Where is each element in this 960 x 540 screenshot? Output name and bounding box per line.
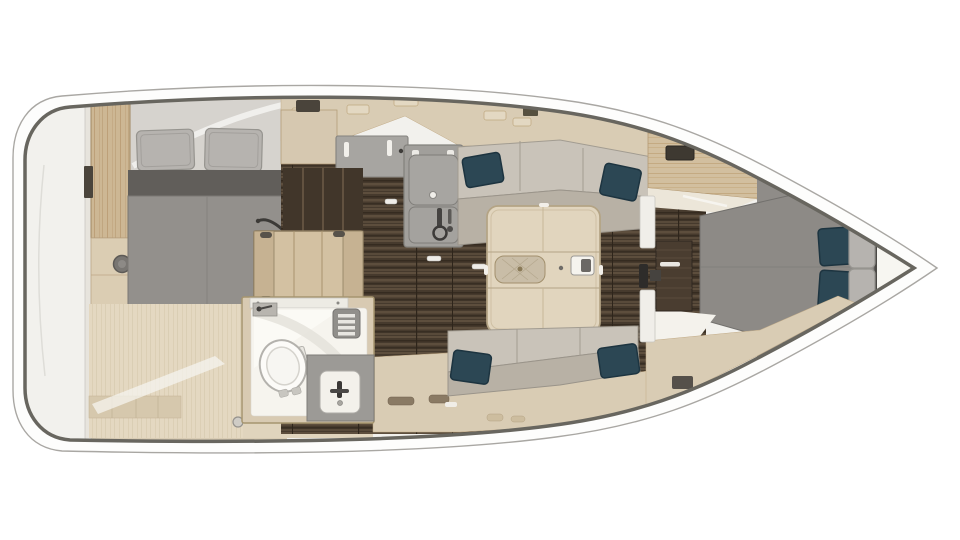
vanity-drain	[338, 401, 343, 406]
counter-knob	[399, 149, 403, 153]
grab-handle-end	[256, 219, 260, 223]
deck-locker	[513, 118, 531, 126]
floor-hatch-mark	[472, 264, 486, 269]
companionway-lockers	[281, 110, 337, 164]
forward-cabin	[639, 127, 913, 410]
cabinet-handle	[511, 416, 525, 422]
table-tab	[484, 265, 488, 275]
faucet-lever	[448, 209, 452, 224]
fwd-hatch	[666, 146, 694, 160]
door-handle	[660, 262, 680, 267]
faucet-knob	[447, 226, 453, 232]
aft-berth-headboard	[128, 170, 287, 196]
bulkhead-pillar-top	[640, 196, 655, 248]
counter-handle	[387, 140, 392, 156]
companionway-hatch	[296, 100, 320, 112]
cabinet-handle	[445, 402, 457, 407]
wardrobe	[91, 102, 130, 238]
platform-locker	[672, 376, 693, 389]
door-slit	[84, 166, 93, 198]
table-dot	[559, 266, 563, 270]
aft-berth-pillow-right	[204, 128, 262, 171]
cabinet-handle	[487, 414, 503, 421]
floorplan-svg	[0, 0, 960, 540]
counter-handle	[344, 142, 349, 157]
teal-pillow	[818, 227, 853, 266]
teal-pillow	[599, 163, 642, 202]
bulkhead-pillar-bottom	[640, 290, 655, 342]
table-tab	[599, 265, 603, 275]
vent-slat	[338, 326, 355, 330]
steps-rail-left	[254, 231, 274, 304]
steps-bracket	[260, 232, 272, 238]
floor-hatch-mark	[385, 199, 397, 204]
vent-slat	[338, 314, 355, 318]
cabinet-handle	[429, 395, 449, 403]
fwd-cabin-door	[656, 241, 692, 311]
steps-bracket	[333, 231, 345, 237]
aft-berth-pillow-left	[136, 129, 194, 171]
head-compartment	[242, 297, 374, 423]
teal-pillow	[462, 152, 505, 188]
sink-cover-knob	[430, 192, 437, 199]
speaker-port-center	[118, 260, 126, 268]
cup-holder-inner	[581, 259, 591, 272]
interior	[39, 90, 913, 442]
floorplan-canvas	[0, 0, 960, 540]
teal-pillow	[450, 350, 492, 385]
teal-pillow	[597, 343, 640, 378]
faucet	[437, 208, 442, 228]
floor-hatch-mark	[427, 256, 441, 261]
vanity-faucet-handle	[330, 389, 349, 393]
cabinet-handle	[388, 397, 414, 405]
mast-post	[639, 264, 648, 288]
salon-table	[484, 203, 603, 337]
steps-rail-right	[343, 231, 363, 304]
door-latch	[650, 270, 661, 281]
deck-locker	[484, 111, 506, 120]
vent-slat	[338, 332, 355, 336]
table-tab	[539, 203, 549, 207]
vent-slat	[338, 320, 355, 324]
mat-center	[518, 267, 523, 272]
door-hinge	[337, 302, 340, 305]
deck-locker	[347, 105, 369, 114]
